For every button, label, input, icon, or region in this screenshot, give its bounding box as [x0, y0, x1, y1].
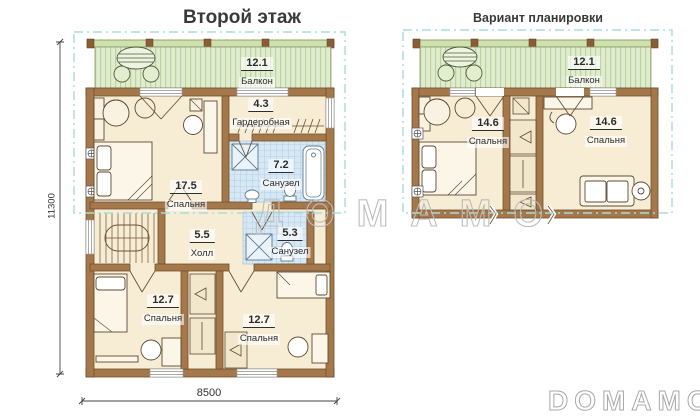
floor-plan-image: ДОМАМО DOMAMO Второй этаж Вариант планир… — [0, 0, 700, 420]
double-bed-icon — [419, 142, 476, 195]
armchair-icon — [424, 99, 450, 125]
right-plan-title: Вариант планировки — [473, 11, 603, 25]
balcony-right-deck — [413, 39, 658, 88]
sofa-icon — [580, 176, 634, 206]
room-label-hall: 5.5 Холл — [189, 225, 215, 262]
room-label-bedroom-left: 12.7 Спальня — [142, 290, 184, 327]
room-label-variant-bedroom-right: 14.6 Спальня — [585, 112, 627, 149]
shelf-icon — [96, 356, 138, 362]
room-label-bath-bottom: 5.3 Санузел — [269, 223, 310, 260]
balcony-left-deck — [87, 39, 334, 88]
round-chair-icon — [632, 182, 650, 200]
chair-icon — [288, 337, 308, 357]
shower-icon — [232, 144, 258, 170]
room-label-variant-bedroom-left: 14.6 Спальня — [467, 113, 509, 150]
room-label-bedroom-main: 17.5 Спальня — [165, 176, 207, 213]
room-label-bedroom-right: 12.7 Спальня — [238, 310, 280, 347]
chair-icon — [141, 340, 161, 360]
single-bed-icon — [94, 274, 127, 332]
left-plan-title: Второй этаж — [183, 7, 301, 29]
chair-icon — [556, 114, 576, 134]
dimension-height: 11300 — [47, 193, 58, 219]
room-label-bath-top: 7.2 Санузел — [260, 155, 301, 192]
dimension-width: 8500 — [197, 387, 221, 399]
desk-icon — [204, 101, 217, 153]
bathtub-icon — [303, 146, 324, 200]
armchair-icon — [103, 100, 129, 126]
room-label-balcony-right: 12.1 Балкон — [566, 52, 602, 89]
double-bed-icon — [94, 142, 152, 200]
watermark-logo: DOMAMO — [548, 385, 700, 417]
room-label-balcony-left: 12.1 Балкон — [239, 53, 275, 90]
desk-icon — [312, 334, 328, 363]
chair-icon — [184, 116, 203, 135]
desk-icon — [162, 338, 181, 366]
shower-icon — [246, 234, 272, 260]
single-bed-icon — [277, 272, 330, 298]
room-label-wardrobe: 4.3 Гардеробная — [230, 94, 291, 131]
desk-icon — [544, 97, 592, 109]
